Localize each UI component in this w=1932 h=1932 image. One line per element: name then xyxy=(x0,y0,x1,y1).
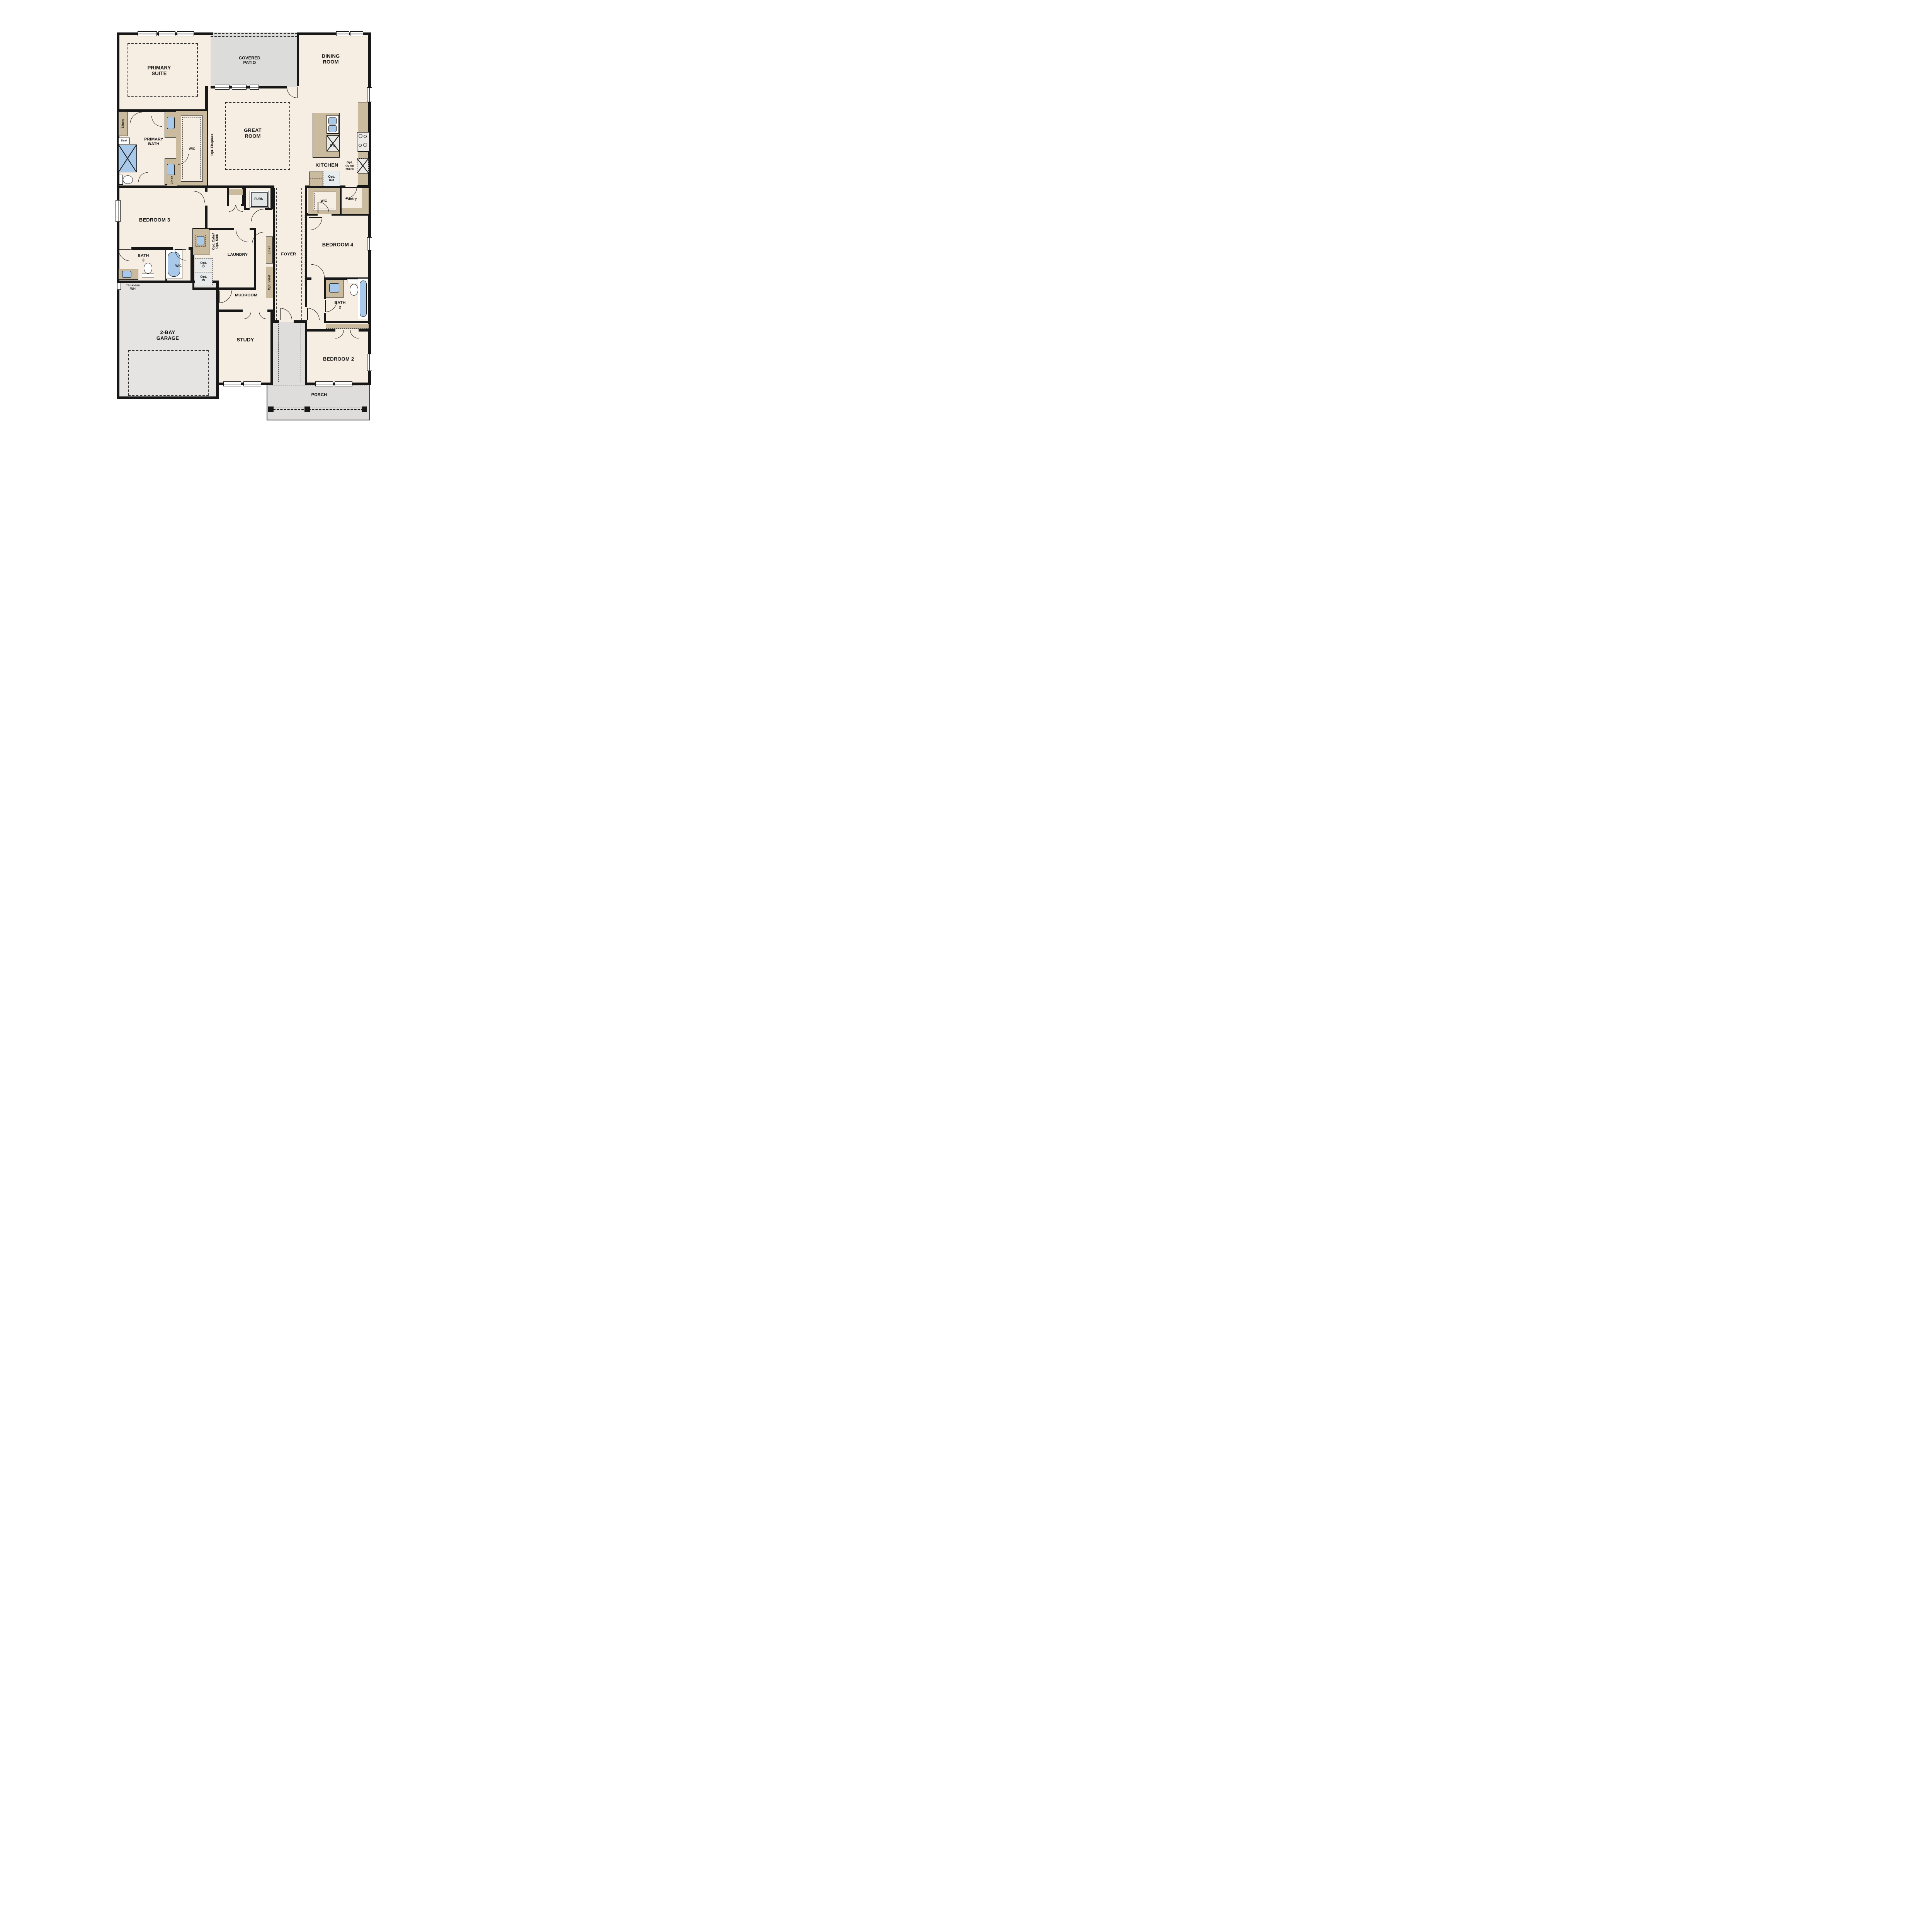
wall xyxy=(273,188,275,323)
opt-oven-micro-box xyxy=(357,158,369,173)
wall xyxy=(208,185,274,188)
shower xyxy=(118,145,137,172)
kitchen-counter-right xyxy=(358,102,369,133)
garage-apron-dash xyxy=(128,350,209,396)
wall xyxy=(216,281,219,399)
toilet-bowl xyxy=(123,175,133,184)
toilet-bowl xyxy=(144,263,152,274)
room-label-study: STUDY xyxy=(236,337,254,343)
room-label-garage: 2-BAY GARAGE xyxy=(156,330,179,341)
room-label-kitchen: KITCHEN xyxy=(315,163,338,168)
wall xyxy=(189,247,192,250)
wall xyxy=(305,188,307,307)
room-label-bedroom4: BEDROOM 4 xyxy=(322,242,354,248)
room-label-great-room: GREAT ROOM xyxy=(244,128,262,139)
wall xyxy=(294,320,307,323)
room-label-primary-suite: PRIMARY SUITE xyxy=(148,65,171,76)
wall xyxy=(244,188,246,209)
sink-basin xyxy=(328,117,337,124)
label-linen-bath-hall: Linen xyxy=(170,176,173,185)
label-wic-bed4: WIC xyxy=(321,199,327,202)
window xyxy=(138,31,157,36)
room-label-bedroom2: BEDROOM 2 xyxy=(323,357,354,362)
label-opt-oven-micro: Opt. Oven/ Micro xyxy=(345,161,354,171)
label-pantry: Pantry xyxy=(345,197,357,201)
label-linen-primary: Linen xyxy=(121,119,124,128)
foyer-dash-left xyxy=(276,188,277,320)
window xyxy=(116,200,121,222)
window xyxy=(223,381,241,386)
floor-plan: PRIMARY SUITE COVERED PATIO DINING ROOM … xyxy=(0,0,473,612)
wall xyxy=(305,277,311,280)
window xyxy=(336,31,349,36)
wall xyxy=(368,32,371,385)
porch-column xyxy=(304,406,310,412)
counter-dash xyxy=(363,104,363,131)
wall xyxy=(270,311,273,385)
kitchen-counter-right xyxy=(358,151,369,158)
window xyxy=(215,85,230,90)
porch-column-dash-row xyxy=(270,409,367,410)
opt-fireplace-box xyxy=(202,134,208,156)
wall xyxy=(265,208,272,210)
window xyxy=(250,85,259,90)
burner xyxy=(359,144,362,147)
bed2-closet-shelf xyxy=(326,324,369,329)
window xyxy=(315,381,333,386)
window xyxy=(232,85,247,90)
sink xyxy=(329,283,339,293)
wall xyxy=(205,188,207,192)
room-label-bath3: BATH 3 xyxy=(138,253,149,263)
wall xyxy=(117,185,208,188)
coat-closet-shelf xyxy=(229,189,243,195)
toilet-tank xyxy=(142,274,154,277)
label-opt-valet: Opt. Valet xyxy=(267,275,271,290)
room-label-primary-bath: PRIMARY BATH xyxy=(144,137,163,146)
window xyxy=(350,31,363,36)
sink xyxy=(167,117,175,129)
foyer-column-texture-right xyxy=(302,215,304,287)
label-dw: DW xyxy=(330,144,335,147)
window xyxy=(243,381,261,386)
label-opt-d: Opt. D xyxy=(200,261,207,268)
room-label-porch: PORCH xyxy=(311,393,327,397)
toilet-tank xyxy=(119,175,123,185)
pantry-shelf xyxy=(362,188,369,211)
kitchen-counter xyxy=(309,172,323,186)
room-label-covered-patio: COVERED PATIO xyxy=(239,56,260,66)
counter-dash xyxy=(310,179,322,179)
label-opt-ref: Opt. Ref xyxy=(328,175,335,182)
wall xyxy=(117,396,218,399)
window xyxy=(158,31,175,36)
kitchen-counter-right xyxy=(358,173,369,185)
toilet-bowl xyxy=(350,284,358,296)
tankless-water-heater xyxy=(117,283,121,290)
burner xyxy=(364,135,367,138)
label-opt-fireplace: Opt. Fireplace xyxy=(210,133,214,155)
wall xyxy=(305,323,307,385)
room-label-foyer: FOYER xyxy=(281,252,296,257)
label-wic-primary: WIC xyxy=(189,147,196,150)
window xyxy=(335,381,352,386)
sink-basin xyxy=(328,125,337,132)
label-furn: FURN xyxy=(254,197,264,201)
label-wic-bed3: WIC xyxy=(175,264,182,267)
wall xyxy=(270,188,273,209)
tub-basin xyxy=(360,281,367,317)
wall xyxy=(192,287,256,290)
wall xyxy=(297,35,299,86)
wall xyxy=(273,320,279,323)
porch-walk-dash-right xyxy=(301,324,301,382)
window xyxy=(367,354,372,371)
pantry-shelf xyxy=(342,208,369,214)
porch-walk-dash-left xyxy=(278,324,279,382)
label-opt-cabs-sink: Opt. Cabs/ Opt. Sink xyxy=(212,233,219,250)
wall xyxy=(307,329,335,332)
label-linen-foyer: Linen xyxy=(267,246,271,255)
wall xyxy=(218,310,243,312)
label-tankless-wh: Tankless WH xyxy=(126,284,140,291)
porch-column xyxy=(268,406,274,412)
label-opt-w: Opt. W xyxy=(200,275,207,282)
label-seat: Seat xyxy=(121,139,128,143)
dishwasher xyxy=(327,135,339,151)
window xyxy=(177,31,194,36)
patio-roof-dash-2 xyxy=(211,36,298,37)
wall xyxy=(244,208,250,210)
patio-roof-dash-1 xyxy=(211,33,298,34)
room-label-laundry: LAUNDRY xyxy=(228,253,248,257)
wall xyxy=(324,321,371,323)
wall xyxy=(359,329,371,332)
room-label-bath2: BATH 2 xyxy=(334,301,345,310)
window xyxy=(367,237,372,250)
burner xyxy=(359,134,362,138)
sink xyxy=(122,271,131,278)
window xyxy=(367,87,372,102)
room-label-mudroom: MUDROOM xyxy=(235,293,257,298)
room-label-bedroom3: BEDROOM 3 xyxy=(139,218,170,223)
burner xyxy=(363,143,367,147)
porch-column xyxy=(362,406,367,412)
laundry-sink xyxy=(197,236,204,245)
room-label-dining-room: DINING ROOM xyxy=(322,53,340,65)
